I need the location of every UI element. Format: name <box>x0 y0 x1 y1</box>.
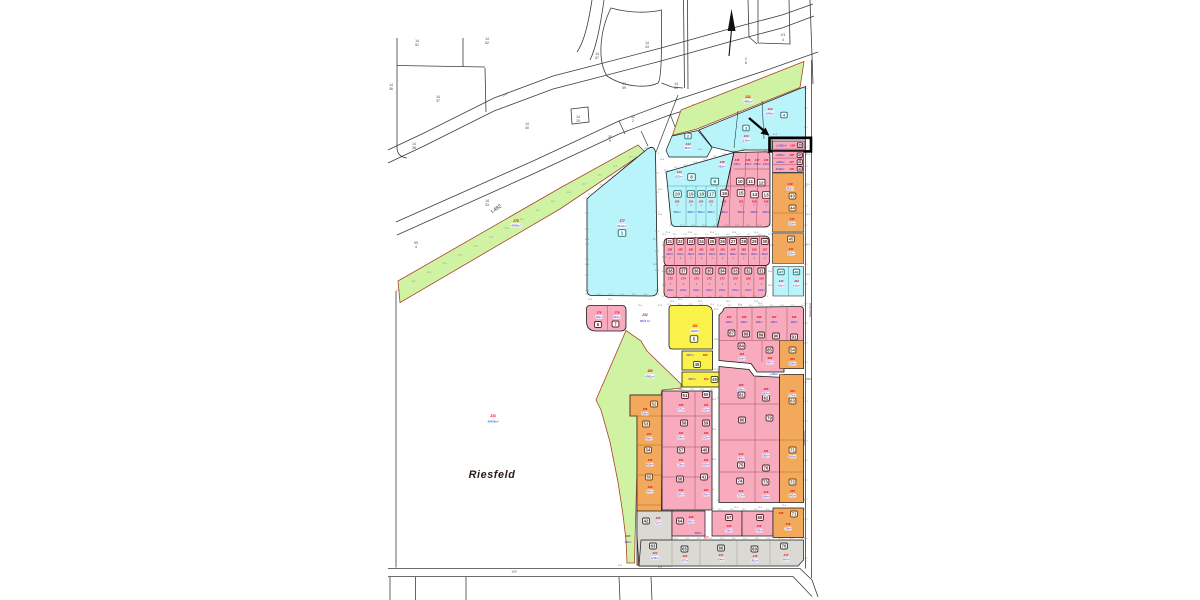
svg-text:189: 189 <box>648 485 653 489</box>
svg-text:37: 37 <box>436 99 440 103</box>
svg-text:607m²: 607m² <box>787 252 794 256</box>
svg-text:217: 217 <box>783 553 789 557</box>
svg-text:654m²: 654m² <box>762 496 769 499</box>
svg-text:57: 57 <box>679 448 684 453</box>
svg-text:947m²: 947m² <box>783 559 790 562</box>
svg-text:214: 214 <box>763 490 769 494</box>
svg-text:70: 70 <box>782 544 787 549</box>
svg-text:40: 40 <box>703 448 708 453</box>
svg-text:660m²: 660m² <box>789 456 796 459</box>
svg-text:52: 52 <box>485 41 489 45</box>
svg-text:79: 79 <box>767 416 772 421</box>
svg-text:433m²: 433m² <box>703 409 710 412</box>
svg-text:150: 150 <box>752 200 757 204</box>
svg-text:178: 178 <box>597 311 602 315</box>
svg-text:549m²: 549m² <box>720 211 727 214</box>
svg-text:165: 165 <box>741 248 746 252</box>
svg-text:58: 58 <box>678 477 683 482</box>
svg-text:159: 159 <box>678 248 683 252</box>
svg-text:425m²: 425m² <box>703 437 710 440</box>
svg-text:42: 42 <box>644 519 649 524</box>
svg-text:302m²: 302m² <box>751 253 758 256</box>
svg-text:38: 38 <box>412 146 416 150</box>
svg-text:432m²: 432m² <box>758 289 765 292</box>
svg-text:8: 8 <box>690 175 693 180</box>
svg-text:712m²: 712m² <box>655 522 662 525</box>
svg-text:170: 170 <box>733 277 738 281</box>
svg-text:209: 209 <box>738 383 744 387</box>
svg-text:73: 73 <box>763 480 768 485</box>
svg-text:24: 24 <box>699 239 704 244</box>
svg-text:549m²: 549m² <box>697 211 704 214</box>
svg-text:36: 36 <box>389 87 393 91</box>
svg-text:178: 178 <box>513 219 519 223</box>
svg-text:13: 13 <box>764 193 770 198</box>
svg-text:84: 84 <box>739 344 744 349</box>
svg-text:411m²: 411m² <box>793 284 800 287</box>
svg-text:8: 8 <box>745 61 747 65</box>
svg-text:542m²: 542m² <box>625 541 632 544</box>
svg-text:204: 204 <box>789 389 795 393</box>
svg-text:172: 172 <box>707 277 712 281</box>
svg-text:456m²: 456m² <box>646 438 653 441</box>
svg-text:191: 191 <box>679 458 684 462</box>
svg-text:143: 143 <box>779 279 784 283</box>
svg-text:628m²: 628m² <box>737 389 744 392</box>
svg-text:17: 17 <box>709 192 715 197</box>
svg-text:+190m²: +190m² <box>776 160 785 164</box>
svg-text:67: 67 <box>727 515 732 520</box>
svg-text:145: 145 <box>719 160 724 164</box>
svg-text:149: 149 <box>764 200 769 204</box>
svg-text:42: 42 <box>798 167 802 171</box>
svg-text:71: 71 <box>790 448 795 453</box>
svg-text:196: 196 <box>792 315 797 319</box>
svg-text:44: 44 <box>790 206 795 211</box>
svg-text:526m²: 526m² <box>642 413 649 416</box>
svg-text:11: 11 <box>748 179 753 184</box>
svg-text:Buschweg: Buschweg <box>809 303 813 317</box>
svg-text:279m²: 279m² <box>733 163 741 166</box>
svg-text:158: 158 <box>667 248 672 252</box>
svg-text:66: 66 <box>719 546 724 551</box>
svg-text:302m²: 302m² <box>698 253 705 256</box>
svg-text:549m²: 549m² <box>707 211 714 214</box>
svg-text:188: 188 <box>648 458 653 462</box>
svg-text:205: 205 <box>763 387 769 391</box>
svg-text:192: 192 <box>679 488 684 492</box>
svg-text:1135m²: 1135m² <box>742 138 751 142</box>
svg-text:31: 31 <box>674 86 678 90</box>
svg-text:62: 62 <box>764 396 769 401</box>
svg-text:35: 35 <box>707 269 712 274</box>
svg-text:410m²: 410m² <box>777 284 784 287</box>
svg-text:20: 20 <box>675 192 681 197</box>
svg-text:188: 188 <box>643 407 648 411</box>
svg-text:218: 218 <box>756 524 762 528</box>
svg-text:68: 68 <box>758 515 763 520</box>
svg-text:54: 54 <box>790 348 795 353</box>
svg-text:+336m²: +336m² <box>770 373 778 376</box>
svg-text:302m²: 302m² <box>719 253 726 256</box>
svg-text:163: 163 <box>720 248 725 252</box>
svg-text:15: 15 <box>738 191 744 196</box>
svg-text:166: 166 <box>752 248 757 252</box>
svg-text:432m²: 432m² <box>745 289 752 292</box>
svg-text:147: 147 <box>755 158 760 162</box>
svg-text:279m²: 279m² <box>744 163 752 166</box>
svg-text:162: 162 <box>710 248 715 252</box>
svg-text:30: 30 <box>762 239 767 244</box>
svg-text:279m²: 279m² <box>753 163 761 166</box>
svg-text:426m²: 426m² <box>756 321 763 324</box>
svg-text:183: 183 <box>703 377 708 381</box>
svg-text:220: 220 <box>726 524 732 528</box>
svg-text:987m²: 987m² <box>762 393 769 396</box>
svg-text:33: 33 <box>485 203 489 207</box>
svg-text:4343m²: 4343m² <box>511 224 522 228</box>
svg-text:173: 173 <box>694 277 699 281</box>
svg-text:528m²: 528m² <box>695 532 702 535</box>
svg-text:211: 211 <box>763 449 769 453</box>
svg-text:1463m²: 1463m² <box>690 329 699 333</box>
svg-text:27: 27 <box>731 239 736 244</box>
svg-text:191: 191 <box>679 431 684 435</box>
svg-text:8112m²: 8112m² <box>617 224 627 228</box>
svg-text:200: 200 <box>726 315 732 319</box>
svg-text:706m²: 706m² <box>726 530 733 533</box>
svg-text:432m²: 432m² <box>706 289 713 292</box>
svg-text:302m²: 302m² <box>667 253 674 256</box>
svg-text:811m²: 811m² <box>752 560 759 563</box>
svg-text:138: 138 <box>789 167 794 171</box>
svg-text:33: 33 <box>733 269 738 274</box>
svg-text:40: 40 <box>798 153 802 157</box>
svg-text:426m²: 426m² <box>726 321 733 324</box>
svg-text:226: 226 <box>688 515 694 519</box>
svg-text:227: 227 <box>703 536 709 540</box>
svg-text:134: 134 <box>767 107 772 111</box>
svg-text:41: 41 <box>798 160 802 164</box>
svg-text:201: 201 <box>739 352 745 356</box>
svg-text:63: 63 <box>790 399 795 404</box>
svg-text:543m²: 543m² <box>613 316 620 319</box>
svg-text:436m²: 436m² <box>647 464 654 467</box>
svg-text:43: 43 <box>790 194 795 199</box>
svg-text:717m²: 717m² <box>737 495 744 498</box>
svg-text:141: 141 <box>788 247 793 251</box>
svg-text:154: 154 <box>699 200 704 204</box>
svg-text:54: 54 <box>646 448 651 453</box>
svg-text:302m²: 302m² <box>730 253 737 256</box>
svg-text:622m²: 622m² <box>675 174 682 178</box>
svg-text:618m²: 618m² <box>788 223 795 226</box>
svg-text:549m²: 549m² <box>737 211 744 214</box>
svg-text:432m²: 432m² <box>595 316 602 319</box>
svg-text:426m²: 426m² <box>741 321 748 324</box>
svg-text:146: 146 <box>746 158 751 162</box>
svg-text:144: 144 <box>676 170 681 174</box>
svg-text:726m²: 726m² <box>678 464 685 467</box>
svg-text:64: 64 <box>678 519 683 524</box>
svg-text:32: 32 <box>746 269 751 274</box>
svg-text:175: 175 <box>668 277 673 281</box>
svg-text:142: 142 <box>794 279 799 283</box>
svg-text:862m²: 862m² <box>688 377 695 381</box>
svg-text:1: 1 <box>621 231 624 236</box>
svg-text:46: 46 <box>794 269 799 274</box>
svg-text:432m²: 432m² <box>667 289 674 292</box>
svg-text:41: 41 <box>702 475 707 480</box>
svg-text:135: 135 <box>790 144 795 148</box>
svg-text:55: 55 <box>647 475 652 480</box>
svg-text:182: 182 <box>702 353 707 357</box>
svg-text:76: 76 <box>764 466 769 471</box>
svg-text:193: 193 <box>704 488 709 492</box>
svg-text:+186m²: +186m² <box>776 153 785 157</box>
svg-text:222: 222 <box>682 554 688 558</box>
svg-text:38: 38 <box>668 269 673 274</box>
svg-text:28: 28 <box>741 239 746 244</box>
svg-text:223: 223 <box>652 551 658 555</box>
svg-text:133: 133 <box>743 134 748 138</box>
svg-text:169: 169 <box>746 277 751 281</box>
svg-text:153: 153 <box>709 200 714 204</box>
svg-text:692m²: 692m² <box>703 464 710 467</box>
svg-text:75: 75 <box>739 463 744 468</box>
svg-text:61: 61 <box>739 393 744 398</box>
svg-text:152: 152 <box>722 200 727 204</box>
svg-text:90: 90 <box>774 334 779 339</box>
svg-text:37: 37 <box>681 269 686 274</box>
svg-text:12: 12 <box>759 180 765 185</box>
svg-text:549m²: 549m² <box>687 211 694 214</box>
svg-text:23: 23 <box>689 239 694 244</box>
svg-text:168: 168 <box>759 277 764 281</box>
svg-text:233: 233 <box>489 414 496 418</box>
svg-text:662m²: 662m² <box>688 521 695 524</box>
svg-text:432m²: 432m² <box>693 289 700 292</box>
svg-text:987m²: 987m² <box>766 362 773 365</box>
svg-text:777m²: 777m² <box>789 395 796 398</box>
svg-text:160: 160 <box>689 248 694 252</box>
svg-text:961m²: 961m² <box>684 146 691 150</box>
svg-text:4: 4 <box>415 245 417 249</box>
svg-text:25: 25 <box>710 239 715 244</box>
svg-text:Riesfeld: Riesfeld <box>469 469 516 481</box>
svg-text:132: 132 <box>685 142 690 146</box>
svg-text:22: 22 <box>678 239 683 244</box>
svg-text:34: 34 <box>720 269 725 274</box>
svg-text:952m²: 952m² <box>786 187 793 191</box>
svg-text:14: 14 <box>752 192 758 197</box>
svg-text:203: 203 <box>789 357 795 361</box>
svg-text:549m²: 549m² <box>750 211 757 214</box>
svg-text:72: 72 <box>790 480 795 485</box>
svg-text:148: 148 <box>764 158 769 162</box>
svg-text:31: 31 <box>759 269 764 274</box>
svg-text:161: 161 <box>699 248 704 252</box>
svg-text:16: 16 <box>722 191 728 196</box>
svg-text:628m²: 628m² <box>789 363 796 366</box>
svg-text:2: 2 <box>632 119 634 123</box>
svg-text:225: 225 <box>655 516 661 520</box>
svg-text:139: 139 <box>787 182 792 186</box>
svg-text:212: 212 <box>738 452 744 456</box>
svg-text:21: 21 <box>667 239 672 244</box>
svg-text:91: 91 <box>792 335 797 340</box>
svg-text:45: 45 <box>789 237 794 242</box>
svg-text:656m²: 656m² <box>703 494 710 497</box>
svg-text:302m²: 302m² <box>762 253 769 256</box>
svg-text:29: 29 <box>752 239 757 244</box>
svg-text:9: 9 <box>714 179 717 184</box>
svg-text:174: 174 <box>681 277 686 281</box>
svg-text:20: 20 <box>576 119 580 123</box>
svg-text:71: 71 <box>792 512 797 517</box>
svg-text:131: 131 <box>745 95 751 99</box>
svg-text:202: 202 <box>767 356 773 360</box>
svg-text:4361m²: 4361m² <box>645 374 656 378</box>
svg-text:59: 59 <box>704 421 709 426</box>
svg-text:199: 199 <box>742 315 747 319</box>
svg-text:677m²: 677m² <box>682 560 689 563</box>
svg-text:432m²: 432m² <box>732 289 739 292</box>
svg-text:184: 184 <box>704 403 709 407</box>
svg-text:302m²: 302m² <box>740 253 747 256</box>
svg-text:136: 136 <box>789 153 794 157</box>
svg-text:140: 140 <box>790 217 795 221</box>
svg-text:675m²: 675m² <box>756 530 763 533</box>
svg-text:10: 10 <box>738 179 744 184</box>
svg-text:738m²: 738m² <box>785 528 792 531</box>
svg-text:151: 151 <box>739 200 744 204</box>
svg-text:87: 87 <box>729 331 734 336</box>
svg-text:53: 53 <box>644 422 649 427</box>
svg-text:438m²: 438m² <box>678 437 685 440</box>
svg-text:660m²: 660m² <box>762 455 769 458</box>
svg-text:39: 39 <box>798 143 802 147</box>
svg-text:74: 74 <box>738 479 743 484</box>
svg-text:860m²: 860m² <box>718 164 725 168</box>
svg-text:57: 57 <box>595 56 599 60</box>
svg-text:48: 48 <box>695 362 700 367</box>
svg-text:549m²: 549m² <box>673 211 680 214</box>
svg-text:40: 40 <box>525 126 529 130</box>
svg-text:150: 150 <box>675 200 680 204</box>
svg-text:137: 137 <box>789 160 794 164</box>
svg-text:50: 50 <box>704 392 709 397</box>
svg-text:1234m²: 1234m² <box>651 557 659 560</box>
svg-text:187: 187 <box>647 432 652 436</box>
svg-text:179: 179 <box>615 311 620 315</box>
svg-text:65: 65 <box>682 547 687 552</box>
svg-text:180: 180 <box>647 369 653 373</box>
svg-text:2488m²: 2488m² <box>765 111 775 115</box>
svg-text:818m²: 818m² <box>738 358 745 361</box>
svg-text:145: 145 <box>735 158 740 162</box>
svg-text:63: 63 <box>651 544 656 549</box>
svg-text:549m²: 549m² <box>762 211 769 214</box>
svg-text:426m²: 426m² <box>771 321 778 324</box>
svg-text:5: 5 <box>693 337 696 342</box>
svg-text:804m²: 804m² <box>718 559 725 562</box>
svg-text:221: 221 <box>718 553 724 557</box>
svg-text:192: 192 <box>704 431 709 435</box>
svg-text:88: 88 <box>744 332 749 337</box>
svg-text:100: 100 <box>511 570 516 574</box>
svg-text:4: 4 <box>782 38 784 42</box>
svg-text:232: 232 <box>641 313 648 317</box>
svg-text:171: 171 <box>720 277 725 281</box>
svg-text:85: 85 <box>767 348 772 353</box>
svg-text:9: 9 <box>609 139 611 143</box>
svg-text:164: 164 <box>731 248 736 252</box>
svg-text:215: 215 <box>789 489 795 493</box>
svg-text:477m²: 477m² <box>678 409 685 412</box>
svg-text:9823 m²: 9823 m² <box>640 319 651 323</box>
svg-text:447m²: 447m² <box>647 491 654 494</box>
svg-text:897m²: 897m² <box>686 353 693 357</box>
svg-text:80: 80 <box>740 418 745 423</box>
svg-text:69: 69 <box>752 547 757 552</box>
svg-text:2/1: 2/1 <box>781 33 786 37</box>
svg-text:51: 51 <box>415 43 419 47</box>
svg-text:667m²: 667m² <box>678 494 685 497</box>
svg-text:177: 177 <box>619 219 625 223</box>
svg-text:56: 56 <box>682 421 687 426</box>
svg-text:224: 224 <box>625 534 631 538</box>
svg-text:59: 59 <box>622 86 626 90</box>
svg-text:218: 218 <box>752 554 758 558</box>
svg-text:+1180m²: +1180m² <box>776 144 788 148</box>
svg-text:432m²: 432m² <box>719 289 726 292</box>
svg-text:640m²: 640m² <box>737 458 744 461</box>
svg-text:153: 153 <box>689 200 694 204</box>
svg-text:36: 36 <box>694 269 699 274</box>
svg-text:302m²: 302m² <box>688 253 695 256</box>
svg-text:228: 228 <box>778 511 784 515</box>
svg-text:26: 26 <box>720 239 725 244</box>
svg-text:56456m²: 56456m² <box>487 419 499 423</box>
svg-text:279m²: 279m² <box>762 163 770 166</box>
svg-text:89: 89 <box>759 333 764 338</box>
svg-text:51: 51 <box>683 393 688 398</box>
svg-text:167: 167 <box>762 248 767 252</box>
svg-text:302m²: 302m² <box>709 253 716 256</box>
svg-text:185: 185 <box>679 403 684 407</box>
svg-text:19: 19 <box>688 192 694 197</box>
svg-text:219: 219 <box>785 522 791 526</box>
svg-text:194: 194 <box>704 458 709 462</box>
svg-text:84/3: 84/3 <box>806 377 812 381</box>
svg-text:2190m²: 2190m² <box>775 167 785 171</box>
svg-text:18: 18 <box>699 192 705 197</box>
svg-text:432m²: 432m² <box>680 289 687 292</box>
svg-text:43: 43 <box>645 45 649 49</box>
svg-text:2981m²: 2981m² <box>742 100 754 104</box>
svg-text:49: 49 <box>712 377 717 382</box>
svg-text:302m²: 302m² <box>677 253 684 256</box>
svg-text:213: 213 <box>738 489 744 493</box>
svg-text:181: 181 <box>692 324 698 328</box>
svg-text:198: 198 <box>757 315 762 319</box>
svg-text:197: 197 <box>772 315 777 319</box>
svg-text:426m²: 426m² <box>791 321 798 324</box>
svg-text:52: 52 <box>652 402 657 407</box>
svg-text:47: 47 <box>779 269 784 274</box>
svg-text:642m²: 642m² <box>789 495 796 498</box>
